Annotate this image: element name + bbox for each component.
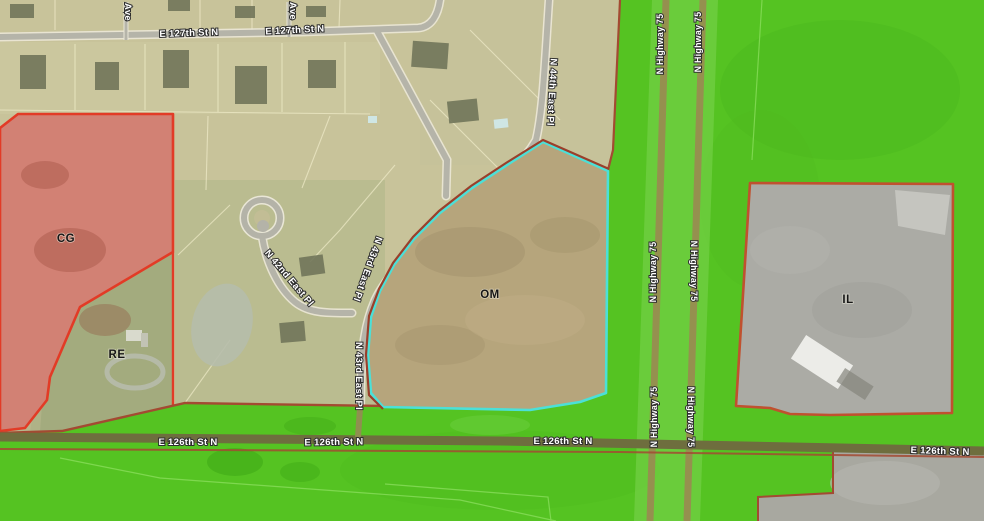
street-label-hwy-4: N Highway 75 xyxy=(689,241,699,302)
street-label-ave-2: Ave xyxy=(287,2,298,20)
street-label-hwy-2: N Highway 75 xyxy=(693,12,703,73)
street-label-ave-1: Ave xyxy=(122,3,133,21)
street-label-hwy-1: N Highway 75 xyxy=(655,14,665,75)
street-label-e126-1: E 126th St N xyxy=(158,437,217,448)
street-label-hwy-3: N Highway 75 xyxy=(648,242,658,303)
pool xyxy=(368,116,377,123)
street-label-e127-1: E 127th St N xyxy=(159,27,218,40)
map-canvas[interactable]: E 127th St N E 127th St N Ave Ave N 44th… xyxy=(0,0,984,521)
street-label-hwy-5: N Highway 75 xyxy=(649,387,659,448)
zone-label-il: IL xyxy=(842,294,853,306)
street-label-e126-4: E 126th St N xyxy=(910,445,969,458)
zoning-map[interactable]: E 127th St N E 127th St N Ave Ave N 44th… xyxy=(0,0,984,521)
zone-label-re: RE xyxy=(109,349,126,361)
pool xyxy=(494,118,509,128)
zone-label-cg: CG xyxy=(57,233,75,245)
street-label-e126-2: E 126th St N xyxy=(304,436,363,448)
zone-label-om: OM xyxy=(480,289,500,301)
street-label-n43-2: N 43rd East Pl xyxy=(353,342,364,410)
street-label-e126-3: E 126th St N xyxy=(533,436,592,447)
street-label-hwy-6: N Highway 75 xyxy=(686,387,696,448)
